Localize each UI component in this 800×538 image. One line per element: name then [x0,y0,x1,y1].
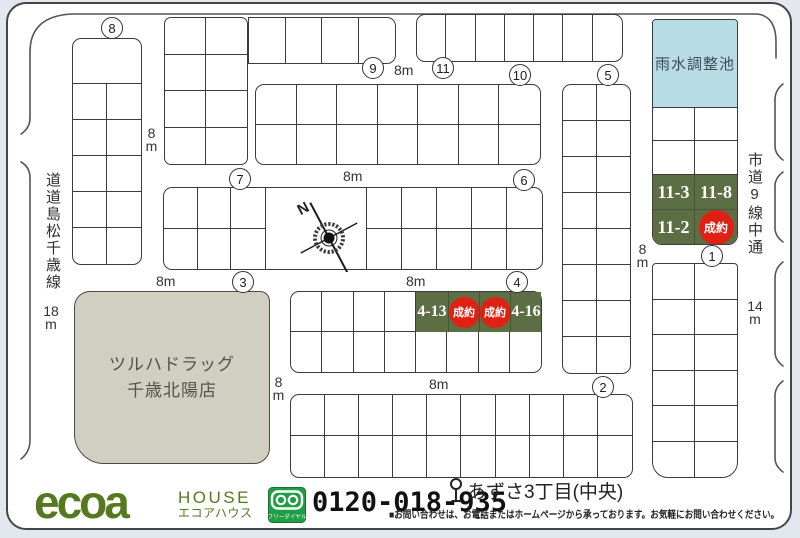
lot-cell [165,91,206,128]
block-marker-2: 2 [592,376,614,398]
block-marker-9: 9 [362,57,384,79]
lot-cell [337,125,378,165]
lot-cell [416,332,447,372]
lot-cell [206,128,247,165]
lot-cell [107,120,141,156]
lot-cell [563,15,592,61]
lot-cell [563,85,597,121]
lot-cell [402,188,437,229]
building-name-line2: 千歳北陽店 [127,378,217,404]
road-width-8m: 8m [272,376,285,403]
lot-cell [598,436,632,477]
block-marker-1: 1 [701,245,723,267]
lot-cell [563,301,597,337]
lot-cell [249,18,286,63]
brand-sub-house: HOUSE [178,489,253,506]
road-width-8m: 8m [156,273,175,289]
lot-cell [564,395,598,436]
lot-cell [499,125,540,165]
lot-cell [476,15,505,61]
road-name-right: 市道9線中通 [744,152,765,302]
lot-cell [206,91,247,128]
lot-block-1 [652,263,738,478]
lot-cell [354,292,385,332]
lot-id: 11-2 [657,217,689,238]
lot-cell [563,157,597,193]
lot-cell [563,193,597,229]
lot-cell [291,292,322,332]
lot-cell [256,125,297,165]
block-marker-3: 3 [232,271,254,293]
lot-cell [198,188,232,229]
lot-cell [354,332,385,372]
lot-cell [505,15,534,61]
lot-cell [653,141,695,174]
lot-cell [653,371,695,407]
freedial-icon: フリーダイヤル [268,487,306,523]
lot-cell [359,436,393,477]
road-width-8m: 8m [636,243,649,270]
lot-cell [593,15,622,61]
brand-sub: HOUSE エコアハウス [178,489,253,520]
lot-cell [378,85,419,125]
lot-cell [402,229,437,270]
lots-block11: 11-3 11-8 11-2 成約 [653,174,737,244]
lot-block-10 [255,84,541,165]
lot-cell [507,229,542,270]
lot-cell [447,332,478,372]
lot-cell [597,121,631,157]
lot-cell [325,436,359,477]
lot-cell [164,188,198,229]
lot-cell [291,332,322,372]
pond-label: 雨水調整池 [655,53,735,74]
lot-cell [418,85,459,125]
lot-cell [165,55,206,92]
lot-cell [165,128,206,165]
lot-cell [322,332,353,372]
block-marker-4: 4 [506,271,528,293]
lot-cell [472,188,507,229]
lot-cell [653,406,695,442]
lot-cell [461,436,495,477]
compass-rose: N [291,196,361,272]
lot-cell [446,15,475,61]
block-marker-10: 10 [509,64,531,86]
lot-cell [479,332,510,372]
lot-cell [418,125,459,165]
lot-4-16[interactable]: 4-16 [510,292,541,332]
lot-cell [597,85,631,121]
lot-cell [496,395,530,436]
lot-id: 4-13 [417,303,446,321]
sold-badge: 成約 [449,297,480,328]
lot-cell [297,85,338,125]
lot-block-8 [72,38,142,265]
lot-id: 11-3 [657,182,689,203]
lot-cell [73,84,107,120]
lot-cell [597,229,631,265]
brand-logo: ecoa [34,480,127,524]
lot-cell [459,85,500,125]
lot-cell [325,395,359,436]
lot-11-2[interactable]: 11-2 [653,210,695,245]
lot-cell [378,125,419,165]
lot-cell [206,18,247,55]
lot-cell [322,18,359,63]
lot-cell [367,229,402,270]
lot-cell [695,406,737,442]
lot-cell [291,395,325,436]
lot-cell [297,125,338,165]
road-width-8m: 8m [343,168,362,184]
lots-block4: 4-13 成約 成約 4-16 [416,292,541,332]
lot-cell [597,193,631,229]
lot-cell [73,228,107,264]
lot-cell [530,395,564,436]
lot-cell [107,192,141,228]
block-marker-8: 8 [101,17,123,39]
lot-4-13[interactable]: 4-13 [416,292,448,332]
lot-cell [499,85,540,125]
building-name-line1: ツルハドラッグ [109,352,235,378]
lot-cell [695,141,737,174]
lot-cell [206,55,247,92]
rainwater-pond: 雨水調整池 [653,20,737,108]
lot-cell [534,15,563,61]
block-marker-7: 7 [229,168,251,190]
brand-sub-kana: エコアハウス [178,506,253,520]
lot-cell [164,229,198,270]
lot-cell [291,436,325,477]
bus-stop: あずさ3丁目(中央) [448,477,623,504]
lot-cell [695,264,737,300]
lot-cell [393,436,427,477]
block-marker-5: 5 [597,64,619,86]
block-marker-11: 11 [432,57,454,79]
lot-id: 4-16 [511,303,540,321]
lot-cell [231,188,265,229]
lot-cell [653,335,695,371]
lot-cell [507,188,542,229]
lot-cell [417,15,446,61]
lot-cell [564,436,598,477]
lot-cell [231,229,265,270]
road-width-8m: 8m [145,127,158,154]
lot-cell [437,229,472,270]
road-width-14m: 14m [744,300,766,327]
lot-cell [437,188,472,229]
lot-cell [530,436,564,477]
lot-cell [393,395,427,436]
lot-cell [597,301,631,337]
lot-cell [337,85,378,125]
lot-cell [385,292,416,332]
lot-cell [359,395,393,436]
block-marker-6: 6 [513,169,535,191]
lot-cell [73,39,141,84]
bus-stop-name: あずさ3丁目(中央) [467,477,623,504]
lot-cell [107,156,141,192]
lot-cell [496,436,530,477]
lot-cell [563,265,597,301]
road-width-8m: 8m [429,376,448,392]
lot-11-8[interactable]: 11-8 [695,175,737,210]
lot-cell [107,228,141,264]
lot-cell [73,156,107,192]
lot-cell [653,108,695,141]
compass-north-label: N [294,199,312,219]
lot-cell [597,265,631,301]
lot-11-3[interactable]: 11-3 [653,175,695,210]
lot-block-top-left [164,17,248,165]
lot-cell [695,442,737,478]
lot-cell [695,371,737,407]
lot-cell [427,395,461,436]
lot-cell [653,264,695,300]
lot-sold-2: 成約 [479,292,510,332]
lot-cell [598,395,632,436]
road-name-left: 道道島松千歳線 [42,172,63,306]
lot-block-11: 雨水調整池 11-3 11-8 11-2 成約 [652,19,738,245]
lot-cell [286,18,323,63]
lot-cell [107,84,141,120]
lot-cell [73,192,107,228]
lot-sold-1: 成約 [448,292,479,332]
drugstore-building: ツルハドラッグ 千歳北陽店 [74,291,270,464]
lot-cell [359,18,396,63]
bus-stop-icon [448,477,464,504]
lot-cell [510,332,541,372]
lot-cell [653,442,695,478]
sold-badge: 成約 [699,210,734,245]
lot-cell [695,300,737,336]
sold-badge: 成約 [480,297,511,328]
lot-cell [322,292,353,332]
lot-cell [563,121,597,157]
lot-cell [563,337,597,373]
road-width-18m: 18m [40,305,62,332]
lot-block-5 [562,84,631,374]
lot-subgrid-6 [366,188,542,269]
lot-cell [597,337,631,373]
road-width-8m: 8m [394,62,413,78]
lot-strip-11 [416,14,623,62]
lot-cell [198,229,232,270]
freedial-label: フリーダイヤル [268,513,306,521]
lot-cell [459,125,500,165]
lot-cell [461,395,495,436]
lot-cell [472,229,507,270]
lot-cell [256,85,297,125]
lot-block-2 [290,394,633,478]
lot-cell [597,157,631,193]
lot-cell [695,108,737,141]
lot-cell [695,335,737,371]
lot-sold-3: 成約 [695,210,737,245]
lot-cell [653,300,695,336]
lot-cell [165,18,206,55]
contact-notice: ■お問い合わせは、お電話またはホームページから承っております。お気軽にお問い合わ… [389,506,779,521]
lot-subgrid-7 [164,188,266,269]
lot-cell [563,229,597,265]
lot-cell [385,332,416,372]
lot-cell [367,188,402,229]
road-width-8m: 8m [406,273,425,289]
lot-cell [427,436,461,477]
lot-id: 11-8 [700,182,732,203]
lot-cell [73,120,107,156]
lot-subgrid-11-white [653,108,737,174]
